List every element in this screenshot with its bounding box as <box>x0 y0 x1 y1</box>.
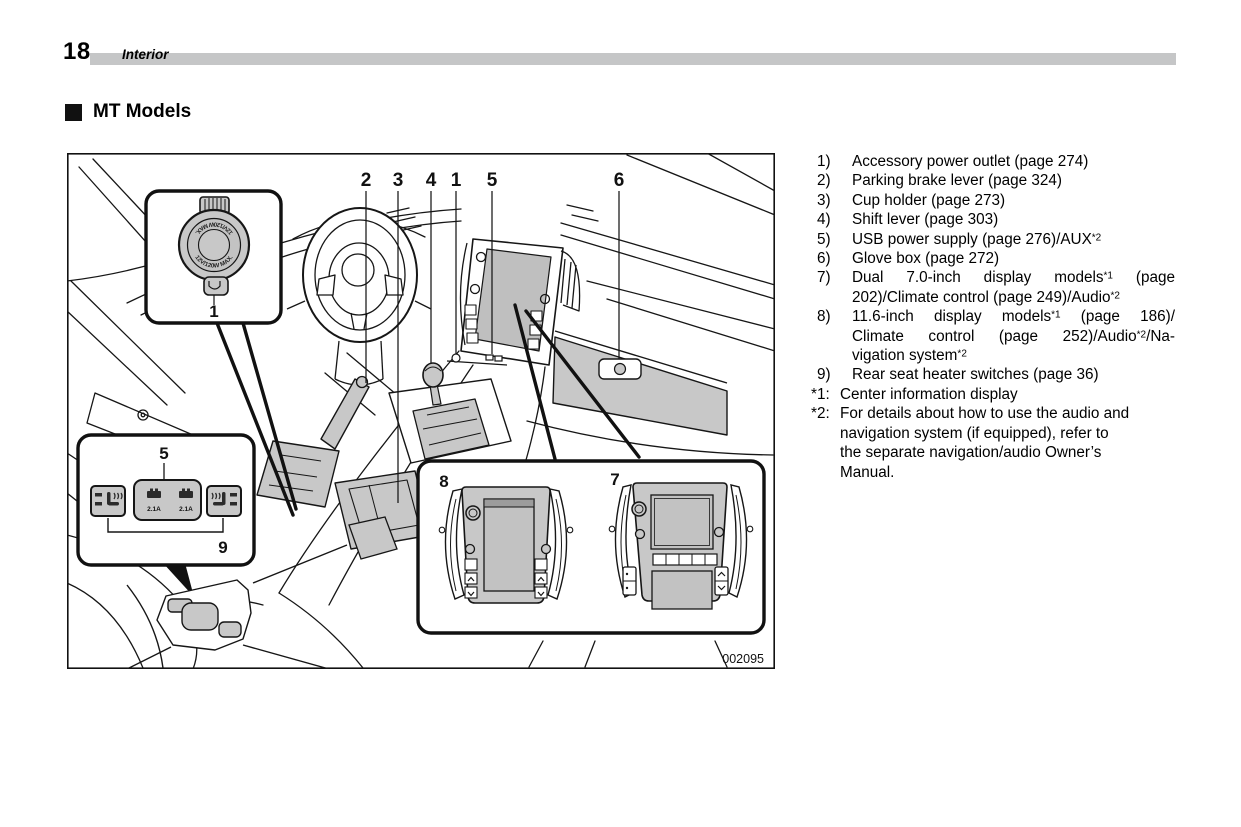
legend-item-number: 2) <box>817 171 831 190</box>
usb-amp-label-left: 2.1A <box>147 506 161 513</box>
inset-label-7: 7 <box>610 470 619 489</box>
legend-item-text: 11.6-inch display models*1 (page 186)/ <box>852 307 1175 326</box>
inset-label-1: 1 <box>209 302 218 321</box>
legend-item-number: 7) <box>817 268 831 287</box>
legend-item-text: Parking brake lever (page 324) <box>852 171 1175 190</box>
footnote-marker: *1: <box>811 385 830 404</box>
legend-item-text: Dual 7.0-inch display models*1 (page <box>852 268 1175 287</box>
legend-item: 5)USB power supply (page 276)/AUX*2 <box>817 230 1175 249</box>
legend-item: 2)Parking brake lever (page 324) <box>817 171 1175 190</box>
interior-figure: 12V/120W MAX. 12V/120W MAX. 1 5 2.1A 2.1… <box>67 153 775 669</box>
legend-item-number: 5) <box>817 230 831 249</box>
legend-footnote: *1:Center information display <box>811 385 1175 404</box>
legend-item-number: 6) <box>817 249 831 268</box>
footnote-text: the separate navigation/audio Owner’s <box>840 443 1175 462</box>
manual-page: { "page": { "number": "18", "section": "… <box>0 0 1241 827</box>
footnote-marker: *2: <box>811 404 830 423</box>
legend-item-text: Cup holder (page 273) <box>852 191 1175 210</box>
legend-item-text: 202)/Climate control (page 249)/Audio*2 <box>852 288 1175 307</box>
seat-heater-switch-right <box>207 486 241 516</box>
callout-label-2: 2 <box>361 170 372 191</box>
legend-item-text: Rear seat heater switches (page 36) <box>852 365 1175 384</box>
footnote-text: navigation system (if equipped), refer t… <box>840 424 1175 443</box>
legend-item-text: USB power supply (page 276)/AUX*2 <box>852 230 1175 249</box>
inset-label-8: 8 <box>439 472 448 491</box>
page-number: 18 <box>63 38 91 66</box>
subsection-heading: MT Models <box>65 101 191 123</box>
callout-label-3: 3 <box>393 170 404 191</box>
legend-item: 1)Accessory power outlet (page 274) <box>817 152 1175 171</box>
figure-code: 002095 <box>722 652 764 666</box>
callout-label-1: 1 <box>451 170 462 191</box>
section-title: Interior <box>122 47 169 62</box>
footnote-text: For details about how to use the audio a… <box>840 404 1175 423</box>
callout-label-4: 4 <box>426 170 437 191</box>
legend-item: 7)Dual 7.0-inch display models*1 (page20… <box>817 268 1175 307</box>
legend-item-text: Accessory power outlet (page 274) <box>852 152 1175 171</box>
footnote-text: Manual. <box>840 463 1175 482</box>
usb-amp-label-right: 2.1A <box>179 506 193 513</box>
seat-heater-inset: 5 2.1A 2.1A 9 <box>78 435 254 565</box>
inset-label-5: 5 <box>159 444 168 463</box>
legend-item: 9)Rear seat heater switches (page 36) <box>817 365 1175 384</box>
legend-item-text: Glove box (page 272) <box>852 249 1175 268</box>
footnote-text: Center information display <box>840 385 1175 404</box>
callout-label-6: 6 <box>614 170 625 191</box>
legend-item-number: 4) <box>817 210 831 229</box>
heading-square-bullet <box>65 104 82 121</box>
legend-item-number: 3) <box>817 191 831 210</box>
legend-list: 1)Accessory power outlet (page 274)2)Par… <box>817 152 1175 482</box>
legend-item: 8)11.6-inch display models*1 (page 186)/… <box>817 307 1175 365</box>
legend-item-number: 8) <box>817 307 831 326</box>
inset-label-9: 9 <box>218 538 227 557</box>
subsection-heading-label: MT Models <box>93 101 191 123</box>
seat-heater-switch-left <box>91 486 125 516</box>
display-units-inset: 8 7 <box>418 461 764 633</box>
interior-illustration: 12V/120W MAX. 12V/120W MAX. 1 5 2.1A 2.1… <box>67 153 775 669</box>
legend-item-number: 9) <box>817 365 831 384</box>
legend-item-text: Climate control (page 252)/Audio*2/Na- <box>852 327 1175 346</box>
callout-label-5: 5 <box>487 170 498 191</box>
accessory-outlet-inset: 12V/120W MAX. 12V/120W MAX. 1 <box>146 191 281 323</box>
legend-item: 3)Cup holder (page 273) <box>817 191 1175 210</box>
legend-item: 4)Shift lever (page 303) <box>817 210 1175 229</box>
legend-item: 6)Glove box (page 272) <box>817 249 1175 268</box>
header-rule <box>90 53 1176 65</box>
legend-item-text: vigation system*2 <box>852 346 1175 365</box>
legend-item-number: 1) <box>817 152 831 171</box>
legend-item-text: Shift lever (page 303) <box>852 210 1175 229</box>
legend-footnote: *2:For details about how to use the audi… <box>811 404 1175 482</box>
